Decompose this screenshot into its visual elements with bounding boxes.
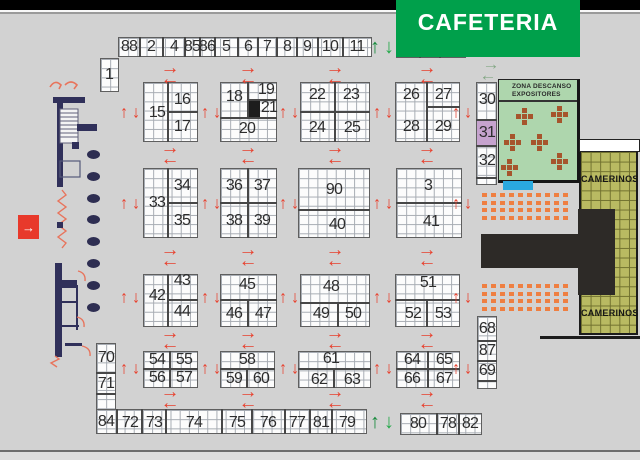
flow-arrow-down-icon: ↓ [384,412,394,432]
aisle-arrow-down-icon: ↓ [213,195,222,212]
aisle-arrow-down-icon: ↓ [132,104,141,121]
aisle-arrow-down-icon: ↓ [464,289,473,306]
seat-dot [545,284,550,288]
seat-dot [527,299,532,303]
aisle-arrow-left-icon: ← [161,70,180,89]
booth-46[interactable]: 46 [226,306,242,322]
aisle-arrow-left-icon: ← [161,394,180,413]
aisle-arrow-down-icon: ↓ [385,195,394,212]
booth-5[interactable]: 5 [222,39,230,55]
aisle-arrow-up-icon: ↑ [373,195,382,212]
aisle-arrow-left-icon: ← [239,150,258,169]
aisle-arrow-left-icon: ← [239,335,258,354]
booth-divider [284,409,286,434]
booth-76[interactable]: 76 [260,415,276,431]
booth-6[interactable]: 6 [244,39,252,55]
booth-9[interactable]: 9 [303,39,311,55]
booth-21[interactable]: 21 [261,100,277,116]
rest-area-table-icon [557,112,562,117]
aisle-arrow-left-icon: ← [326,150,345,169]
booth-71[interactable]: 71 [98,376,114,392]
booth-70[interactable]: 70 [98,350,114,366]
seat-dot [482,216,487,220]
booth-8[interactable]: 8 [283,39,291,55]
rest-area-table-icon [537,140,542,145]
seat-dot [554,193,559,197]
booth-divider [168,299,198,301]
seat-dot [563,208,568,212]
seat-dot [554,201,559,205]
booth-22[interactable]: 22 [309,87,325,103]
booth-19[interactable]: 19 [258,82,274,98]
seat-dot [509,299,514,303]
booth-divider [221,409,223,434]
booth-82[interactable]: 82 [462,416,478,432]
aisle-arrow-down-icon: ↓ [132,360,141,377]
seat-dot [563,292,568,296]
seat-dot [554,292,559,296]
booth-divider [317,37,319,57]
seat-dot [536,193,541,197]
rest-area-table-icon [557,159,562,164]
aisle-arrow-down-icon: ↓ [464,195,473,212]
booth-73[interactable]: 73 [146,415,162,431]
seat-dot [527,307,532,311]
booth-18[interactable]: 18 [226,89,242,105]
booth-77[interactable]: 77 [289,415,305,431]
booth-23[interactable]: 23 [343,87,359,103]
aisle-arrow-left-icon: ← [161,150,180,169]
booth-15[interactable]: 15 [149,105,165,121]
seat-dot [509,193,514,197]
pool-blue-marker [503,181,533,190]
flow-arrow-up-icon: ↑ [370,412,380,432]
camerinos-corridor [579,139,640,152]
aisle-arrow-up-icon: ↑ [452,360,461,377]
seat-dot [491,307,496,311]
booth-36[interactable]: 36 [226,178,242,194]
seat-dot [518,201,523,205]
booth-39[interactable]: 39 [254,213,270,229]
rest-area-label: ZONA DESCANSO EXPOSITORES [499,80,577,102]
aisle-arrow-left-icon: ← [161,335,180,354]
booth-divider [300,302,370,304]
seat-dot [518,208,523,212]
booth-42[interactable]: 42 [149,288,165,304]
booth-65[interactable]: 65 [436,352,452,368]
booth-27[interactable]: 27 [435,87,451,103]
seat-dot [500,201,505,205]
aisle-arrow-down-icon: ↓ [464,104,473,121]
booth-43[interactable]: 43 [174,273,190,289]
booth-32[interactable]: 32 [479,153,495,169]
booth-69[interactable]: 69 [479,363,495,379]
aisle-arrow-up-icon: ↑ [120,289,129,306]
aisle-arrow-up-icon: ↑ [201,360,210,377]
booth-divider [237,37,239,57]
aisle-arrow-down-icon: ↓ [132,289,141,306]
booth-divider [162,37,164,57]
seat-dot [518,307,523,311]
seat-dot [545,292,550,296]
seat-dot [482,208,487,212]
aisle-arrow-up-icon: ↑ [279,104,288,121]
seat-dot [509,208,514,212]
aisle-arrow-down-icon: ↓ [213,104,222,121]
booth-33[interactable]: 33 [149,195,165,211]
wall-line [540,336,640,339]
aisle-arrow-up-icon: ↑ [373,360,382,377]
seat-dot [527,284,532,288]
aisle-arrow-left-icon: ← [418,150,437,169]
booth-79[interactable]: 79 [339,415,355,431]
curtain-zigzag-icon [58,190,66,248]
pillar-oval [87,259,100,268]
seat-dot [536,292,541,296]
aisle-arrow-up-icon: ↑ [452,104,461,121]
entrance-arrow-icon: → [22,220,35,235]
pillar-oval [87,172,100,181]
booth-90[interactable]: 90 [326,182,342,198]
seat-dot [482,292,487,296]
seat-dot [527,208,532,212]
seat-dot [500,284,505,288]
booth-48[interactable]: 48 [323,279,339,295]
booth-divider [139,37,141,57]
expo-floor-plan: CAFETERIA ZONA DESCANSO EXPOSITORES CAME… [0,0,640,460]
aisle-arrow-left-icon: ← [326,335,345,354]
aisle-arrow-down-icon: ↓ [385,289,394,306]
booth-40[interactable]: 40 [329,217,345,233]
seat-dot [536,299,541,303]
booth-78[interactable]: 78 [440,416,456,432]
seat-dot [563,216,568,220]
pillar-oval [87,303,100,312]
seat-dot [563,193,568,197]
booth-divider [436,413,438,435]
aisle-arrow-up-icon: ↑ [373,289,382,306]
seat-dot [491,292,496,296]
seat-dot [518,193,523,197]
aisle-arrow-down-icon: ↓ [464,360,473,377]
camerinos-label-bottom: CAMERINOS [581,308,636,318]
booth-52[interactable]: 52 [405,306,421,322]
aisle-arrow-down-icon: ↓ [385,104,394,121]
booth-divider [168,202,198,204]
seat-dot [482,299,487,303]
aisle-arrow-up-icon: ↑ [120,104,129,121]
booth-divider [116,409,118,434]
aisle-arrow-left-icon: ← [161,252,180,271]
booth-75[interactable]: 75 [229,415,245,431]
booth-divider [220,202,277,204]
aisle-arrow-left-icon: ← [418,335,437,354]
aisle-arrow-left-icon: ← [239,70,258,89]
booth-25[interactable]: 25 [344,120,360,136]
aisle-arrow-up-icon: ↑ [373,104,382,121]
seat-dot [545,299,550,303]
aisle-arrow-down-icon: ↓ [213,360,222,377]
booth-3[interactable]: 3 [424,178,432,194]
seat-dot [509,201,514,205]
seat-dot [500,299,505,303]
aisle-arrow-down-icon: ↓ [213,289,222,306]
seat-dot [518,299,523,303]
pillar-oval [87,150,100,159]
booth-86[interactable]: 86 [199,39,215,55]
aisle-arrow-down-icon: ↓ [385,360,394,377]
seat-dot [500,193,505,197]
booth-divider [476,119,497,121]
seat-dot [482,284,487,288]
booth-divider [220,117,277,119]
seat-dot [518,216,523,220]
seat-dot [482,307,487,311]
stage-platform [578,209,615,295]
booth-4[interactable]: 4 [170,39,178,55]
seat-dot [554,299,559,303]
seat-dot [518,284,523,288]
entrance-icon[interactable]: → [18,215,39,239]
booth-divider [300,111,370,113]
stairs-icon [60,113,78,137]
booth-28[interactable]: 28 [403,119,419,135]
booth-51[interactable]: 51 [420,275,436,291]
booth-divider [476,145,497,147]
seat-dot [509,216,514,220]
rest-area-table-icon [510,140,515,145]
pillar-oval [87,215,100,224]
booth-divider [342,37,344,57]
rest-area-table-icon [522,114,527,119]
seat-dot [491,201,496,205]
aisle-arrow-down-icon: ↓ [291,104,300,121]
booth-53[interactable]: 53 [435,306,451,322]
seat-dot [536,201,541,205]
booth-divider [309,409,311,434]
seat-dot [491,284,496,288]
seat-dot [563,299,568,303]
seat-dot [536,208,541,212]
booth-47[interactable]: 47 [255,306,271,322]
aisle-arrow-up-icon: ↑ [452,289,461,306]
booth-2[interactable]: 2 [147,39,155,55]
booth-80[interactable]: 80 [410,416,426,432]
flow-arrow-up-icon: ↑ [370,37,380,57]
seat-dot [500,307,505,311]
flow-arrow-down-icon: ↓ [384,37,394,57]
booth-divider [296,37,298,57]
seat-dot [536,284,541,288]
seat-dot [491,193,496,197]
booth-84[interactable]: 84 [98,414,114,430]
booth-85[interactable]: 85 [184,39,200,55]
booth-41[interactable]: 41 [423,214,439,230]
seat-dot [491,299,496,303]
booth-67[interactable]: 67 [436,371,452,387]
booth-72[interactable]: 72 [122,415,138,431]
booth-divider [458,413,460,435]
aisle-arrow-up-icon: ↑ [201,289,210,306]
booth-10[interactable]: 10 [322,39,338,55]
booth-45[interactable]: 45 [239,277,255,293]
cafeteria-flow-arrow-icon: ← [480,67,497,84]
aisle-arrow-left-icon: ← [239,394,258,413]
booth-block-filled-cell [248,100,260,118]
seat-dot [527,193,532,197]
seat-dot [563,201,568,205]
seat-dot [554,307,559,311]
booth-20[interactable]: 20 [239,121,255,137]
booth-7[interactable]: 7 [263,39,271,55]
booth-29[interactable]: 29 [435,119,451,135]
booth-50[interactable]: 50 [345,306,361,322]
seat-dot [509,307,514,311]
booth-24[interactable]: 24 [309,120,325,136]
seat-dot [527,216,532,220]
seat-dot [518,292,523,296]
booth-divider [477,380,497,382]
aisle-arrow-left-icon: ← [326,70,345,89]
aisle-arrow-down-icon: ↓ [291,360,300,377]
booth-divider [426,82,428,142]
aisle-arrow-up-icon: ↑ [279,360,288,377]
aisle-arrow-left-icon: ← [326,394,345,413]
booth-81[interactable]: 81 [313,415,329,431]
aisle-arrow-left-icon: ← [418,70,437,89]
booth-30[interactable]: 30 [479,92,495,108]
seat-dot [563,284,568,288]
booth-divider [96,393,116,395]
booth-divider [298,209,370,211]
seat-dot [509,292,514,296]
seat-dot [500,208,505,212]
booth-16[interactable]: 16 [174,92,190,108]
pillar-oval [87,194,100,203]
aisle-arrow-up-icon: ↑ [120,360,129,377]
stage-catwalk [481,234,578,268]
booth-88[interactable]: 88 [121,39,137,55]
aisle-arrow-left-icon: ← [418,252,437,271]
booth-37[interactable]: 37 [254,178,270,194]
booth-divider [96,372,116,374]
aisle-arrow-down-icon: ↓ [291,195,300,212]
seat-dot [545,307,550,311]
booth-35[interactable]: 35 [174,213,190,229]
booth-17[interactable]: 17 [174,119,190,135]
seat-dot [491,216,496,220]
seat-dot [545,208,550,212]
seat-dot [500,292,505,296]
pillar-oval [87,281,100,290]
booth-34[interactable]: 34 [174,178,190,194]
aisle-arrow-left-icon: ← [326,252,345,271]
aisle-arrow-up-icon: ↑ [201,104,210,121]
aisle-arrow-left-icon: ← [418,394,437,413]
booth-63[interactable]: 63 [344,372,360,388]
seat-dot [527,292,532,296]
booth-divider [476,177,497,179]
seat-dot [536,216,541,220]
booth-divider [141,409,143,434]
aisle-arrow-up-icon: ↑ [279,289,288,306]
seat-dot [482,193,487,197]
cafeteria-label: CAFETERIA [418,9,559,36]
seat-dot [545,193,550,197]
booth-1[interactable]: 1 [105,67,113,83]
aisle-arrow-up-icon: ↑ [120,195,129,212]
aisle-arrow-down-icon: ↓ [132,195,141,212]
booth-divider [257,37,259,57]
pillar-oval [87,237,100,246]
seat-dot [527,201,532,205]
rest-area-table-icon [507,165,512,170]
aisle-arrow-down-icon: ↓ [291,289,300,306]
booth-87[interactable]: 87 [479,343,495,359]
camerinos-label-top: CAMERINOS [581,174,636,184]
seat-dot [482,201,487,205]
seat-dot [500,216,505,220]
booth-divider [276,37,278,57]
door-swing-icon [50,82,77,89]
booth-49[interactable]: 49 [313,306,329,322]
aisle-arrow-up-icon: ↑ [279,195,288,212]
booth-44[interactable]: 44 [174,304,190,320]
aisle-arrow-left-icon: ← [239,252,258,271]
aisle-arrow-up-icon: ↑ [452,195,461,212]
cafeteria-area: CAFETERIA [396,0,580,57]
booth-68[interactable]: 68 [479,321,495,337]
seat-dot [554,284,559,288]
aisle-arrow-up-icon: ↑ [201,195,210,212]
seat-dot [545,201,550,205]
booth-31[interactable]: 31 [479,125,495,141]
seat-dot [554,208,559,212]
seat-dot [563,307,568,311]
bottom-margin [0,450,640,460]
seat-dot [545,216,550,220]
booth-divider [168,111,198,113]
seat-dot [491,208,496,212]
seat-dot [509,284,514,288]
seat-dot [554,216,559,220]
seat-dot [536,307,541,311]
booth-11[interactable]: 11 [349,39,364,55]
booth-38[interactable]: 38 [226,213,242,229]
booth-74[interactable]: 74 [186,415,202,431]
